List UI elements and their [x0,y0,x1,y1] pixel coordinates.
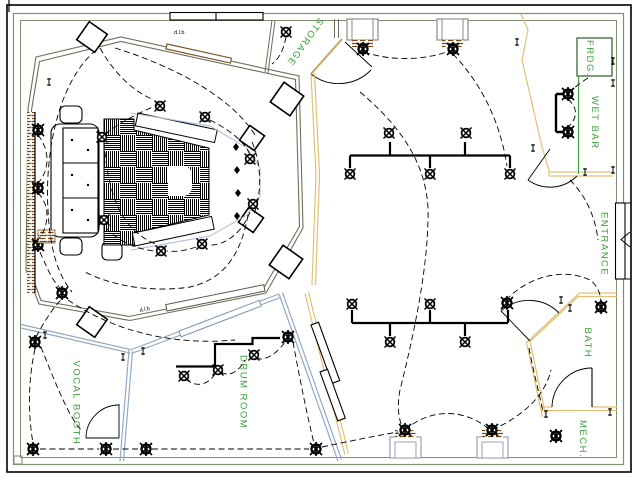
svg-text:BATH: BATH [582,328,593,359]
svg-text:FRDG.: FRDG. [584,40,595,77]
svg-text:d.l.b: d.l.b [174,30,184,36]
svg-text:WET BAR: WET BAR [589,96,600,150]
svg-text:DRUM ROOM: DRUM ROOM [238,355,249,429]
svg-text:VOCAL BOOTH: VOCAL BOOTH [71,361,82,446]
svg-text:MECH.: MECH. [577,420,588,458]
svg-text:ENTRANCE: ENTRANCE [599,212,610,276]
